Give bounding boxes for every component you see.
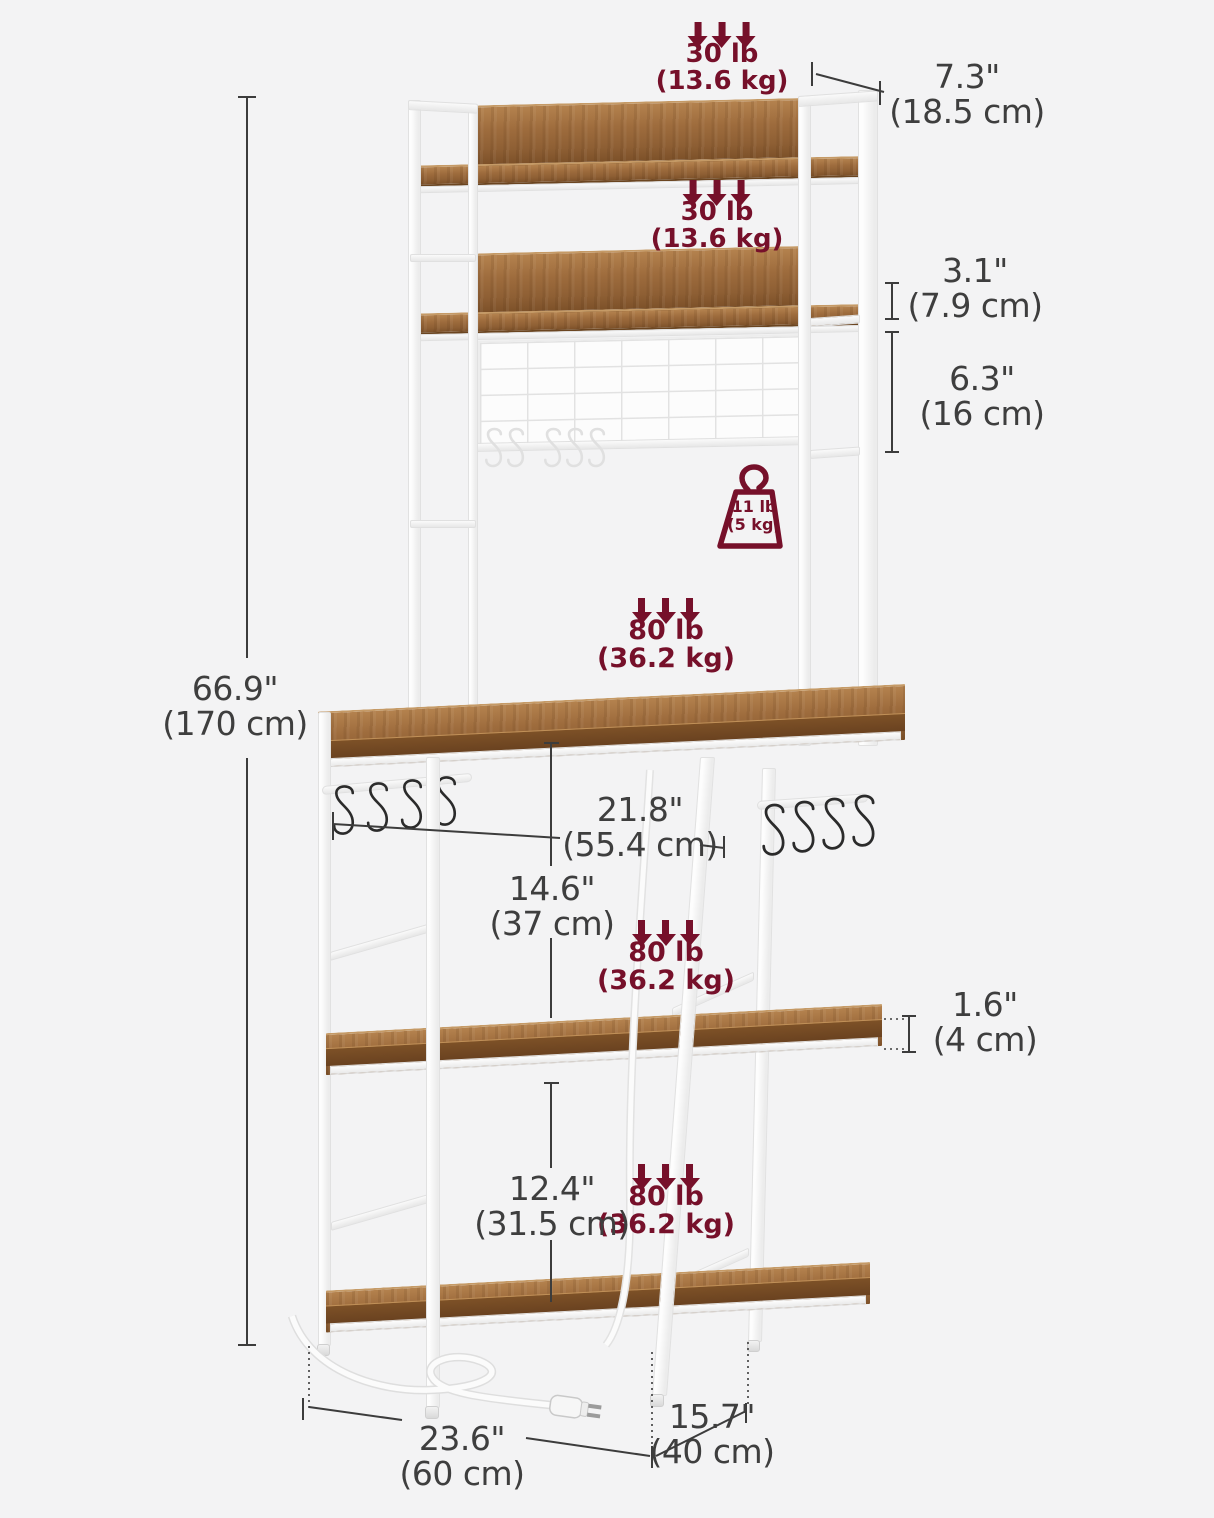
dimension-overall-depth: 15.7" (40 cm)	[649, 1400, 774, 1470]
dimension-inches: 15.7"	[649, 1400, 774, 1435]
down-arrows-icon	[656, 22, 789, 36]
down-arrows-icon	[597, 598, 735, 612]
dimension-centimeters: (16 cm)	[919, 397, 1044, 432]
dimension-centimeters: (18.5 cm)	[889, 95, 1045, 130]
dimension-inches: 12.4"	[474, 1172, 630, 1207]
dimension-inches: 14.6"	[489, 872, 614, 907]
dimension-centimeters: (60 cm)	[399, 1457, 524, 1492]
dimension-shelf-depth: 7.3" (18.5 cm)	[889, 60, 1045, 130]
dimension-inches: 6.3"	[919, 362, 1044, 397]
load-label-main-tabletop: 80 lb (36.2 kg)	[597, 598, 735, 674]
dimension-overall-width: 23.6" (60 cm)	[399, 1422, 524, 1492]
dimension-inches: 23.6"	[399, 1422, 524, 1457]
dimension-centimeters: (37 cm)	[489, 907, 614, 942]
dimension-shelf-thickness: 1.6" (4 cm)	[933, 988, 1038, 1058]
dimension-inches: 66.9"	[162, 672, 308, 707]
dimension-centimeters: (4 cm)	[933, 1023, 1038, 1058]
dimension-tabletop-width: 21.8" (55.4 cm)	[562, 793, 718, 863]
load-kilograms: (13.6 kg)	[656, 68, 789, 95]
dimension-lines	[0, 0, 1214, 1518]
down-arrows-icon	[597, 920, 735, 934]
dimension-inches: 7.3"	[889, 60, 1045, 95]
dimension-mid-to-bottom-shelf: 12.4" (31.5 cm)	[474, 1172, 630, 1242]
load-kilograms: (36.2 kg)	[597, 645, 735, 673]
dimension-table-to-mid-shelf: 14.6" (37 cm)	[489, 872, 614, 942]
dimension-grid-height: 6.3" (16 cm)	[919, 362, 1044, 432]
dimension-inches: 1.6"	[933, 988, 1038, 1023]
hanger-load-kilograms: (5 kg)	[706, 516, 802, 534]
hanger-load-pounds: 11 lb	[706, 498, 802, 516]
dimension-total-height: 66.9" (170 cm)	[162, 672, 308, 742]
load-label-middle-shelf: 80 lb (36.2 kg)	[597, 920, 735, 996]
dimension-inches: 3.1"	[907, 254, 1042, 289]
load-kilograms: (36.2 kg)	[597, 967, 735, 995]
load-label-top-shelf: 30 lb (13.6 kg)	[656, 22, 789, 96]
down-arrows-icon	[651, 180, 784, 194]
dimension-centimeters: (7.9 cm)	[907, 289, 1042, 324]
load-label-second-shelf: 30 lb (13.6 kg)	[651, 180, 784, 254]
dimension-inches: 21.8"	[562, 793, 718, 828]
product-dimension-diagram: 30 lb (13.6 kg) 30 lb (13.6 kg) 80 lb (3…	[0, 0, 1214, 1518]
dimension-centimeters: (31.5 cm)	[474, 1207, 630, 1242]
dimension-shelf-grid-gap: 3.1" (7.9 cm)	[907, 254, 1042, 324]
dimension-centimeters: (170 cm)	[162, 707, 308, 742]
load-kilograms: (13.6 kg)	[651, 226, 784, 253]
dimension-centimeters: (40 cm)	[649, 1435, 774, 1470]
hanging-weight-icon: 11 lb (5 kg)	[706, 464, 802, 556]
dimension-centimeters: (55.4 cm)	[562, 828, 718, 863]
